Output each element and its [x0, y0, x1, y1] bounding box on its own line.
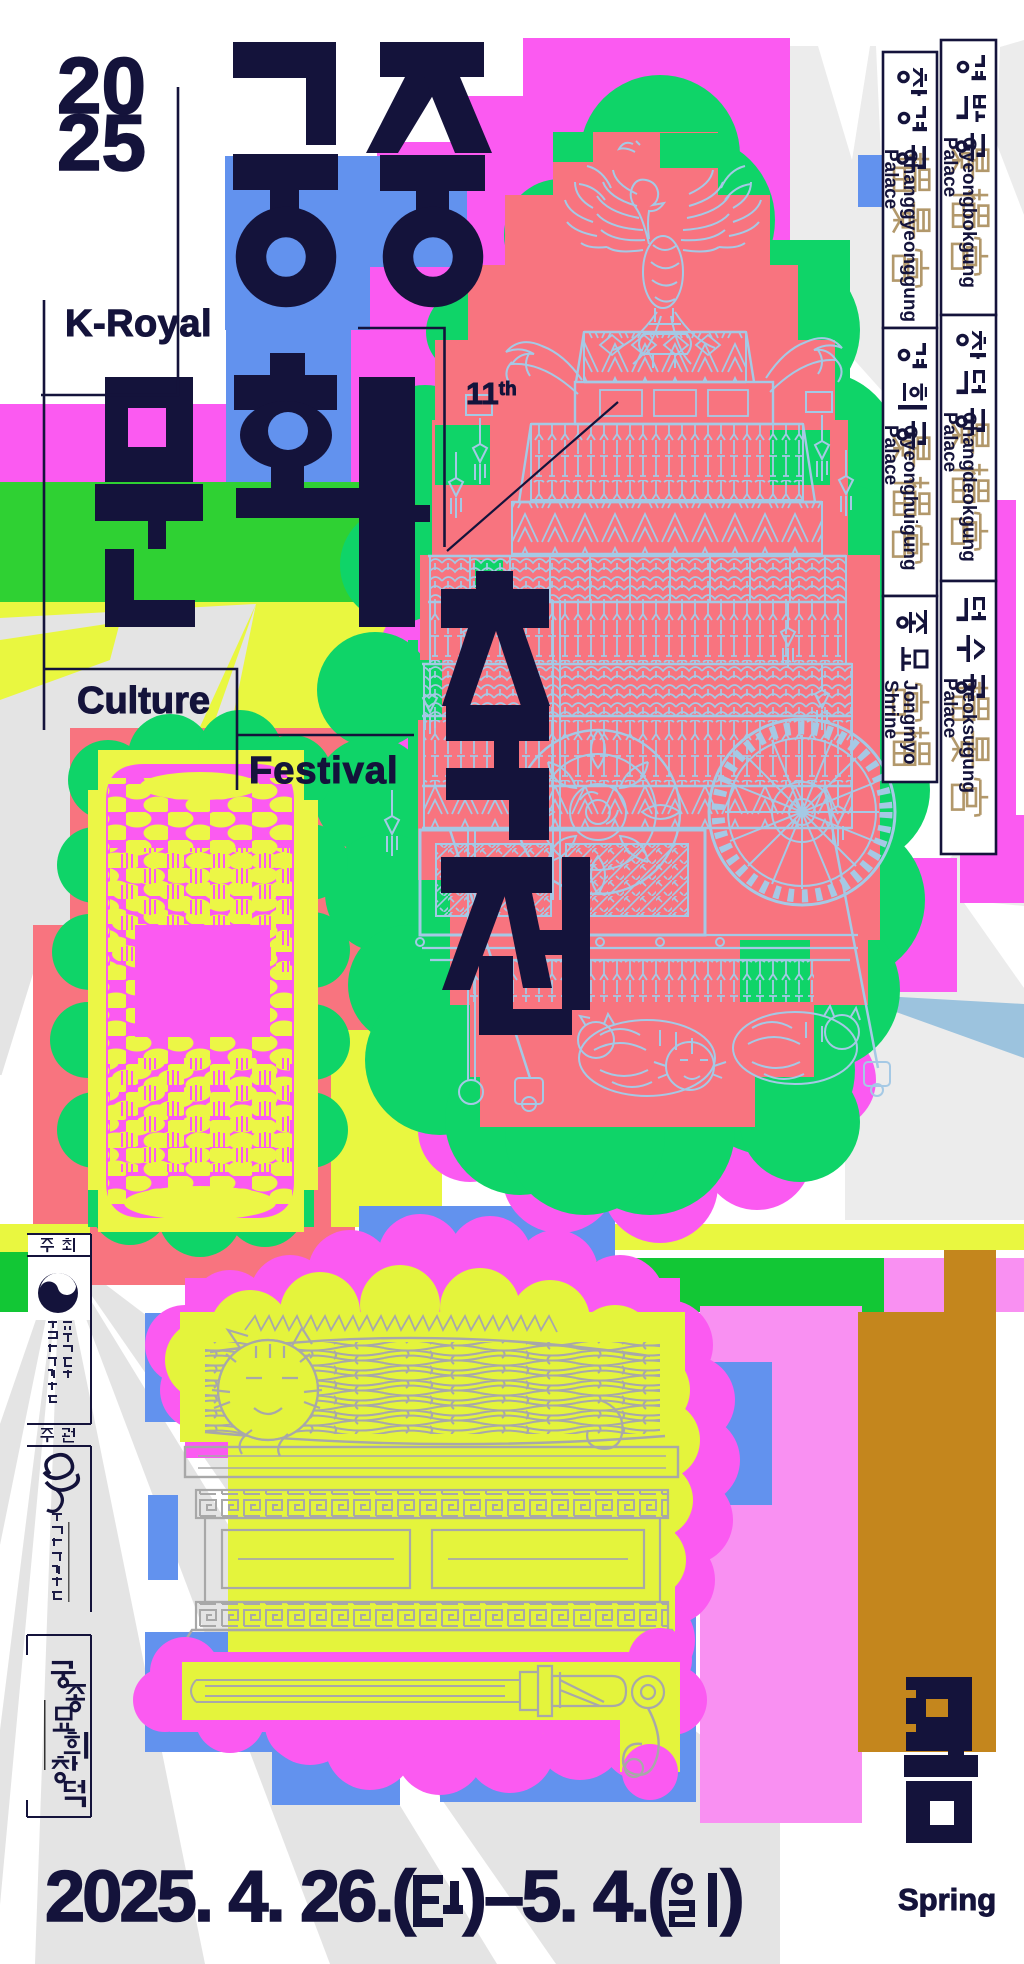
- svg-text:Deoksugung: Deoksugung: [958, 678, 979, 793]
- svg-text:Gyeonghuigung: Gyeonghuigung: [899, 425, 920, 571]
- svg-text:Palace: Palace: [939, 137, 960, 197]
- svg-text:Palace: Palace: [880, 425, 901, 485]
- svg-text:Palace: Palace: [939, 412, 960, 472]
- svg-text:Changdeokgung: Changdeokgung: [958, 412, 979, 562]
- svg-text:Palace: Palace: [880, 149, 901, 209]
- svg-text:Shrine: Shrine: [880, 680, 901, 739]
- svg-text:Palace: Palace: [939, 678, 960, 738]
- svg-text:Changgyeonggung: Changgyeonggung: [899, 149, 920, 322]
- svg-text:Jongmyo: Jongmyo: [899, 680, 920, 764]
- svg-text:Gyeongbokgung: Gyeongbokgung: [958, 137, 979, 288]
